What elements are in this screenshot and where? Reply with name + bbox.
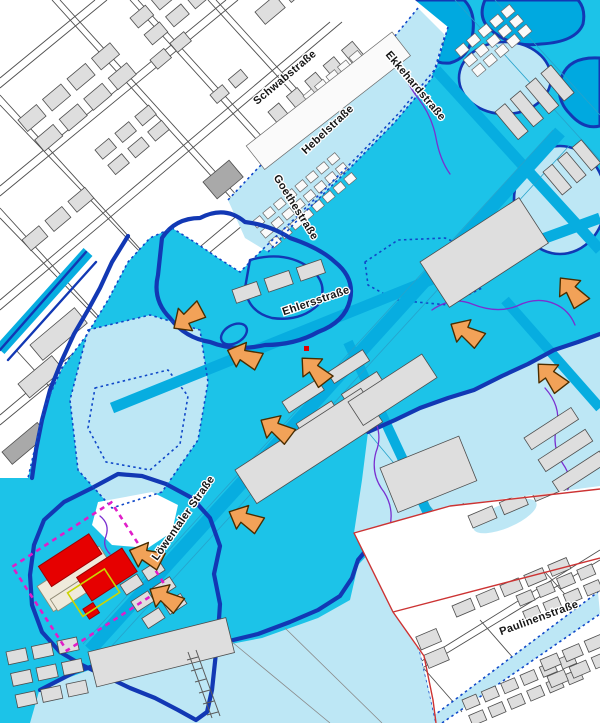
- flood-map-canvas: Schwabstraße Ekkehardstraße Hebelstraße …: [0, 0, 600, 723]
- red-marker-dot: [304, 346, 309, 351]
- flood-map-svg: Schwabstraße Ekkehardstraße Hebelstraße …: [0, 0, 600, 723]
